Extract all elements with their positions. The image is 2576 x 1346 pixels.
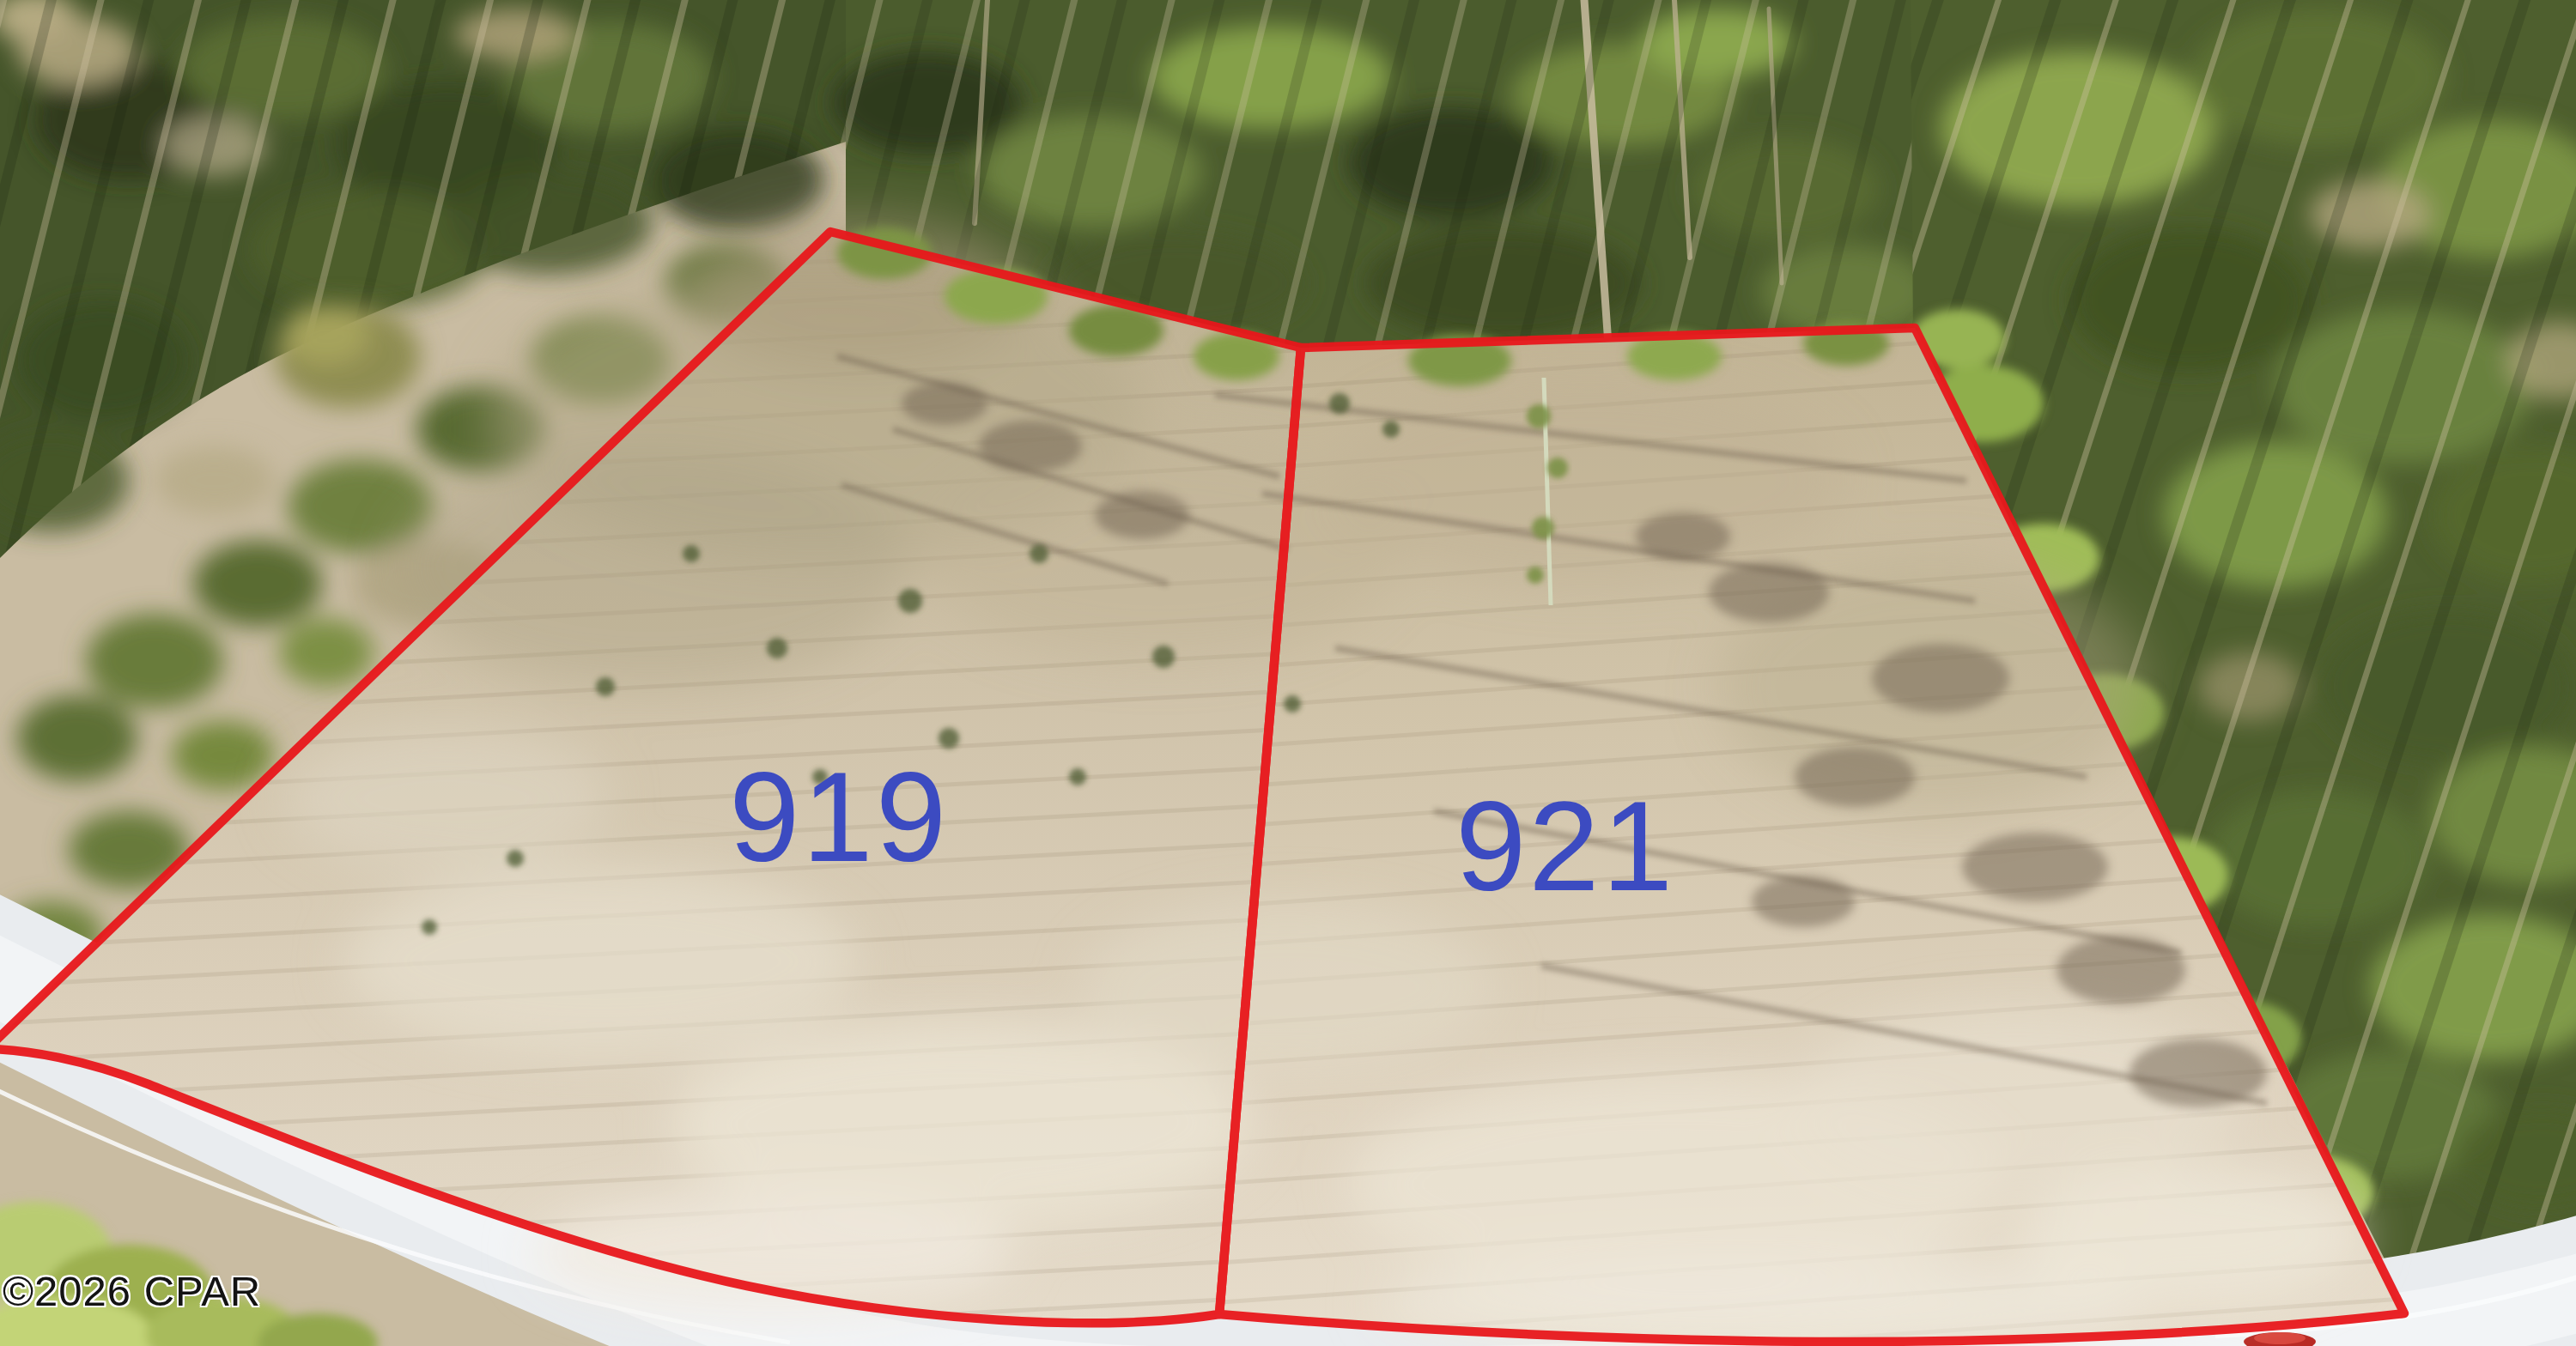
lot-919-label: 919 [729,744,949,890]
copyright-watermark: ©2026 CPAR [3,1267,261,1315]
lot-921-label: 921 [1455,773,1675,919]
aerial-photo-stage: 919 921 ©2026 CPAR [0,0,2576,1346]
aerial-photo [0,0,2576,1346]
